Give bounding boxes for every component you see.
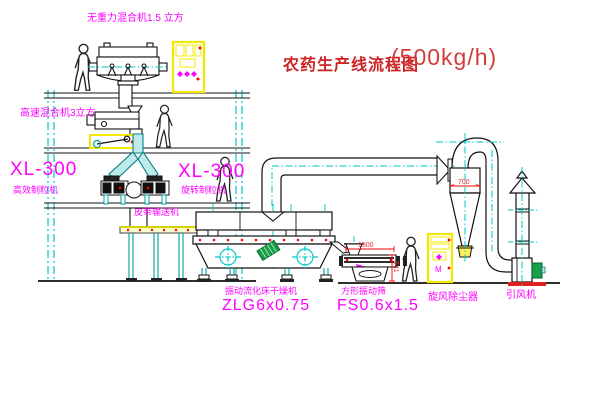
mixer-drive-box bbox=[90, 135, 138, 148]
label-granulator-right-model: XL-300 bbox=[178, 162, 245, 181]
cabinet-motor-mark: M bbox=[435, 266, 442, 274]
control-cabinet-2 bbox=[428, 234, 452, 282]
label-high-speed-mixer: 高速混合机3立方 bbox=[20, 109, 96, 119]
label-granulator-left-model: XL-300 bbox=[10, 160, 77, 179]
person-floor2 bbox=[156, 105, 172, 147]
label-sieve-name: 方形振动筛 bbox=[341, 287, 386, 296]
diagram-title-capacity: (500kg/h) bbox=[391, 44, 497, 71]
dim-cyclone-width: 700 bbox=[458, 179, 470, 186]
label-granulator-left-name: 高效制粒机 bbox=[13, 186, 58, 195]
outlet-pipe bbox=[486, 150, 512, 272]
label-fan: 引风机 bbox=[506, 291, 536, 301]
label-granulator-right-name: 旋转制粒机 bbox=[181, 186, 226, 195]
process-flow-diagram: 无重力混合机1.5 立方 高速混合机3立方 XL-300 高效制粒机 XL-30… bbox=[0, 0, 600, 403]
dim-sieve-height: 541 bbox=[392, 261, 399, 273]
exhaust-duct bbox=[262, 156, 455, 212]
granulator-right bbox=[141, 176, 169, 204]
fluid-bed-dryer bbox=[193, 204, 351, 282]
label-belt-conveyor: 皮带输送机 bbox=[134, 208, 179, 217]
label-dryer-name: 振动流化床干燥机 bbox=[225, 287, 297, 296]
label-sieve-model: FS0.6x1.5 bbox=[337, 298, 419, 314]
granulator-left bbox=[101, 176, 128, 204]
cabinet-knobs-icon bbox=[177, 71, 197, 77]
granulator-disc bbox=[126, 182, 142, 198]
label-dryer-model: ZLG6x0.75 bbox=[222, 298, 310, 314]
label-cyclone: 旋风除尘器 bbox=[428, 293, 478, 303]
induced-draft-fan bbox=[508, 258, 546, 286]
label-gravity-mixer: 无重力混合机1.5 立方 bbox=[87, 14, 184, 24]
control-cabinet-1 bbox=[173, 42, 204, 92]
dim-sieve-length: 1500 bbox=[358, 242, 374, 249]
